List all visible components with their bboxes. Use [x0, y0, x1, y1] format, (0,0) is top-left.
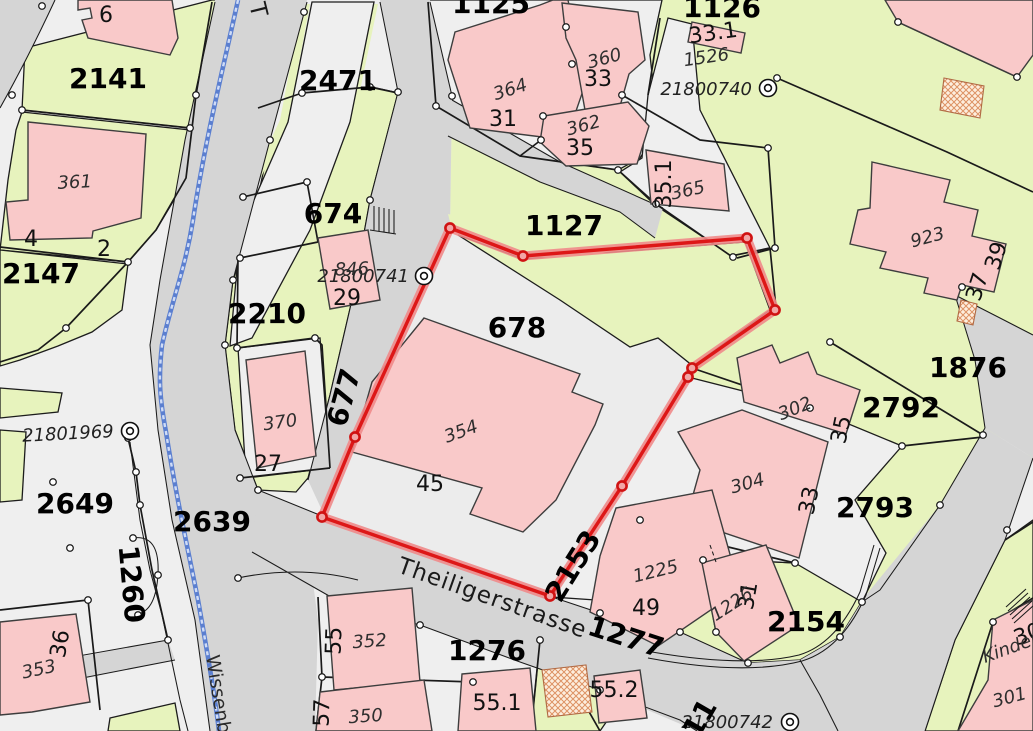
parcel-label-2793: 2793: [836, 491, 914, 524]
house-number-36: 36: [46, 628, 75, 660]
parcel-label-2147: 2147: [2, 257, 80, 290]
parcel-label-1276: 1276: [448, 634, 526, 667]
house-number-6: 6: [99, 3, 113, 28]
house-number-2: 2: [97, 237, 111, 262]
house-number-55.2: 55.2: [590, 678, 639, 703]
house-number-27: 27: [254, 452, 282, 477]
house-number-31: 31: [489, 107, 517, 132]
parcel-label-2154: 2154: [767, 605, 845, 638]
house-number-55: 55: [322, 626, 348, 655]
house-number-55.1: 55.1: [473, 691, 522, 716]
building-number-846: 846: [334, 258, 369, 280]
survey-point-label-21800740: 21800740: [660, 79, 752, 100]
parcel-label-2792: 2792: [862, 391, 940, 424]
house-number-49: 49: [632, 596, 660, 621]
parcel-label-1260: 1260: [112, 544, 152, 625]
parcel-label-678: 678: [488, 311, 546, 344]
building-number-350: 350: [348, 705, 384, 728]
parcel-label-674: 674: [304, 197, 362, 230]
parcel-label-2639: 2639: [173, 505, 251, 538]
parcel-label-2141: 2141: [69, 62, 147, 95]
parcel-label-1127: 1127: [525, 209, 603, 242]
parcel-label-1125: 1125: [452, 0, 530, 20]
house-number-4: 4: [24, 227, 38, 252]
parcel-label-2210: 2210: [228, 297, 306, 330]
map-canvas[interactable]: 21800740218007412180196921800742 1125112…: [0, 0, 1033, 731]
parcel-label-2649: 2649: [36, 487, 114, 520]
house-number-57: 57: [310, 698, 336, 727]
building-number-352: 352: [352, 630, 388, 653]
house-number-29: 29: [333, 286, 361, 311]
cadastral-map-view[interactable]: 21800740218007412180196921800742 1125112…: [0, 0, 1033, 731]
house-number-45: 45: [416, 472, 444, 497]
parcel-label-1876: 1876: [929, 351, 1007, 384]
building-number-361: 361: [57, 171, 92, 194]
parcel-label-2471: 2471: [299, 64, 377, 97]
